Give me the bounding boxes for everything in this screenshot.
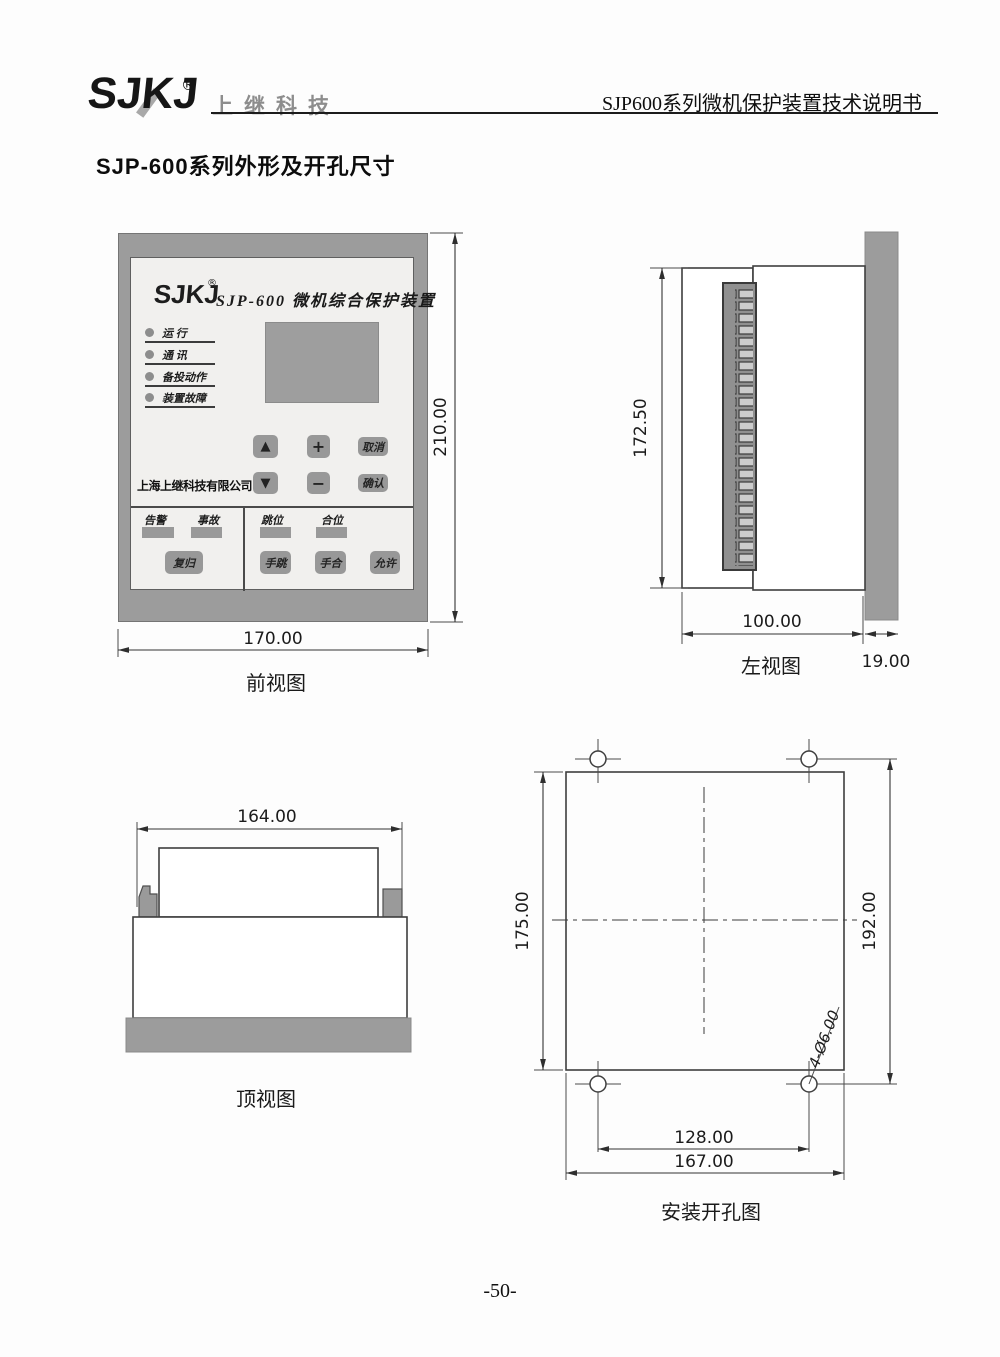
- front-width-dim: 170.00: [243, 629, 302, 649]
- panel-title: SJP-600 微机综合保护装置: [216, 287, 436, 311]
- up-key: ▲: [253, 435, 278, 458]
- top-view-drawing: 164.00: [126, 807, 411, 1052]
- close-indicator: [316, 527, 347, 538]
- mounting-hole-top-left: [590, 751, 606, 767]
- left-view-drawing: 172.50 100.00 19.00: [631, 232, 910, 672]
- top-view-rear-body: [159, 848, 378, 917]
- led-label: 装置故障: [162, 390, 206, 406]
- panel-divider-horizontal: [131, 506, 413, 508]
- device-panel: SJKJ ® SJP-600 微机综合保护装置 运 行 通 讯 备投动作 装置故…: [130, 257, 414, 590]
- confirm-key: 确认: [358, 474, 388, 492]
- company-logo: SJKJ: [88, 72, 218, 120]
- led-label: 运 行: [162, 325, 187, 341]
- comm-led-icon: [145, 350, 154, 359]
- led-run: 运 行: [145, 324, 215, 343]
- reset-key: 复归: [165, 551, 203, 574]
- logo-text: SJKJ: [86, 72, 221, 116]
- led-fault: 装置故障: [145, 389, 215, 408]
- hole-height-dim: 192.00: [860, 891, 880, 950]
- led-label: 备投动作: [162, 369, 206, 385]
- front-view-caption: 前视图: [196, 667, 356, 696]
- minus-key: −: [307, 472, 330, 494]
- top-view-right-clip: [383, 889, 402, 917]
- terminal-strip: [735, 287, 753, 566]
- manual-trip-key: 手跳: [260, 551, 291, 574]
- cancel-key: 取消: [358, 437, 388, 456]
- action-led-icon: [145, 372, 154, 381]
- cutout-height-dim: 175.00: [513, 891, 533, 950]
- cutout-rectangle: [566, 772, 844, 1070]
- plus-key: +: [307, 435, 330, 458]
- left-view-front-body: [753, 266, 865, 590]
- fault-led-icon: [145, 393, 154, 402]
- alarm-label: 告警: [144, 512, 166, 528]
- hole-span-dim: 128.00: [674, 1128, 733, 1148]
- run-led-icon: [145, 328, 154, 337]
- panel-divider-vertical: [243, 508, 245, 591]
- permit-key: 允许: [370, 551, 400, 574]
- led-action: 备投动作: [145, 368, 215, 387]
- mounting-hole-top-right: [801, 751, 817, 767]
- trip-indicator: [260, 527, 291, 538]
- left-view-flange: [865, 232, 898, 620]
- lcd-screen: [265, 322, 379, 403]
- top-view-flange: [126, 1018, 411, 1052]
- page-number: -50-: [0, 1280, 1000, 1303]
- left-depth-dim: 100.00: [742, 612, 801, 632]
- fault-indicator: [191, 527, 222, 538]
- manual-page: SJKJ ® 上继科技 SJP600系列微机保护装置技术说明书 SJP-600系…: [0, 0, 1000, 1357]
- fault-label: 事故: [197, 512, 219, 528]
- alarm-indicator: [142, 527, 174, 538]
- led-comm: 通 讯: [145, 346, 215, 365]
- left-view-caption: 左视图: [691, 650, 851, 679]
- top-width-dim: 164.00: [237, 807, 296, 827]
- front-height-dim: 210.00: [431, 397, 451, 456]
- cutout-view-drawing: 175.00 192.00 128.00 167.00 4-Ø6.00: [513, 739, 897, 1180]
- company-name: 上海上继科技有限公司: [137, 477, 252, 494]
- led-label: 通 讯: [162, 347, 187, 363]
- manual-close-key: 手合: [315, 551, 346, 574]
- top-view-left-clip: [139, 886, 157, 917]
- cutout-view-caption: 安装开孔图: [631, 1196, 791, 1225]
- front-view-device: SJKJ ® SJP-600 微机综合保护装置 运 行 通 讯 备投动作 装置故…: [118, 233, 428, 622]
- top-view-caption: 顶视图: [186, 1083, 346, 1112]
- down-key: ▼: [253, 472, 278, 494]
- close-position-label: 合位: [321, 512, 343, 528]
- trip-position-label: 跳位: [261, 512, 283, 528]
- cutout-width-dim: 167.00: [674, 1152, 733, 1172]
- flange-thickness-dim: 19.00: [862, 652, 911, 672]
- hole-note: 4-Ø6.00: [805, 1008, 843, 1071]
- top-view-front-body: [133, 917, 407, 1018]
- left-height-dim: 172.50: [631, 398, 651, 457]
- mounting-hole-bottom-left: [590, 1076, 606, 1092]
